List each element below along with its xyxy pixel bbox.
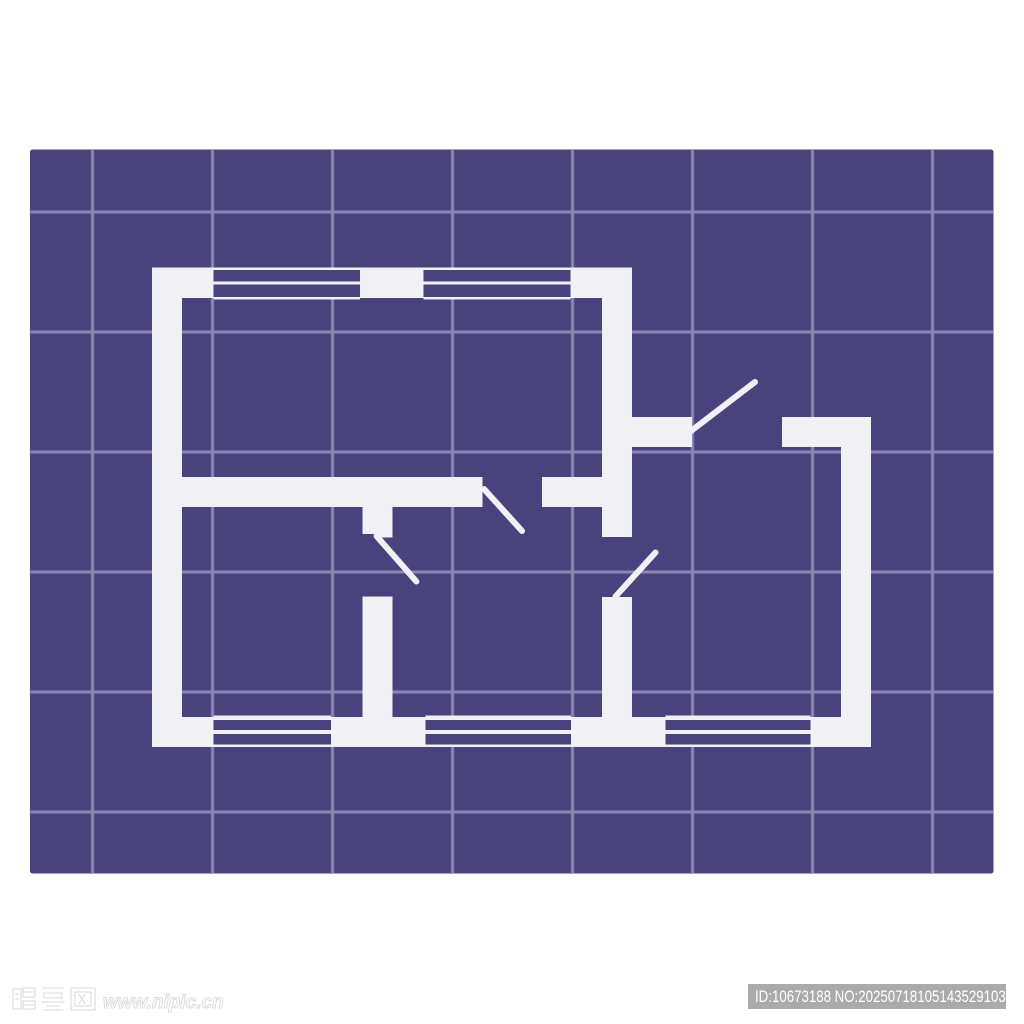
svg-text:www.nipic.cn: www.nipic.cn — [103, 992, 224, 1013]
